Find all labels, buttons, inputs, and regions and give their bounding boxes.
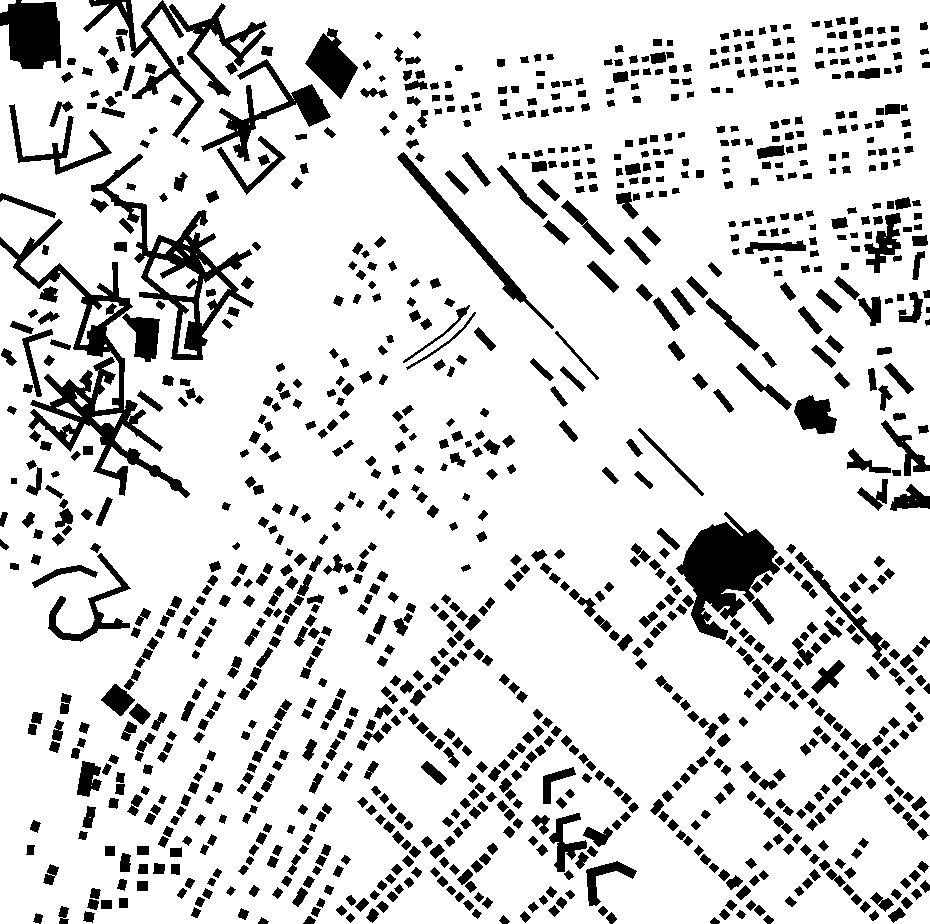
pavilion-6: [170, 479, 182, 491]
south-bar-2: [559, 817, 577, 838]
district-southeast-garden-blocks: [336, 543, 930, 924]
station-hall: [403, 158, 521, 297]
rail-line-1: [519, 294, 552, 327]
district-southwest-chains: [102, 560, 417, 924]
district-northeast-fringe: [360, 31, 427, 163]
pavilion-5: [149, 465, 161, 477]
southwest-curve-a: [36, 568, 94, 584]
north-slab: [291, 84, 331, 127]
district-old-town-blocks: [0, 0, 293, 626]
district-bottomleft-grid: [101, 846, 182, 910]
mass-northeast: [794, 395, 837, 434]
district-slab-rows-ne: [445, 152, 930, 511]
district-old-town-bars: [39, 21, 323, 526]
district-slab-rows-se: [473, 327, 880, 688]
sw-solid-2: [129, 703, 152, 725]
figure-ground-svg: [0, 0, 930, 924]
south-bar-4: [591, 866, 631, 901]
district-center-infill: [209, 236, 517, 639]
city-figure-ground-map: [0, 0, 930, 924]
district-northeast-grid: [403, 17, 930, 326]
